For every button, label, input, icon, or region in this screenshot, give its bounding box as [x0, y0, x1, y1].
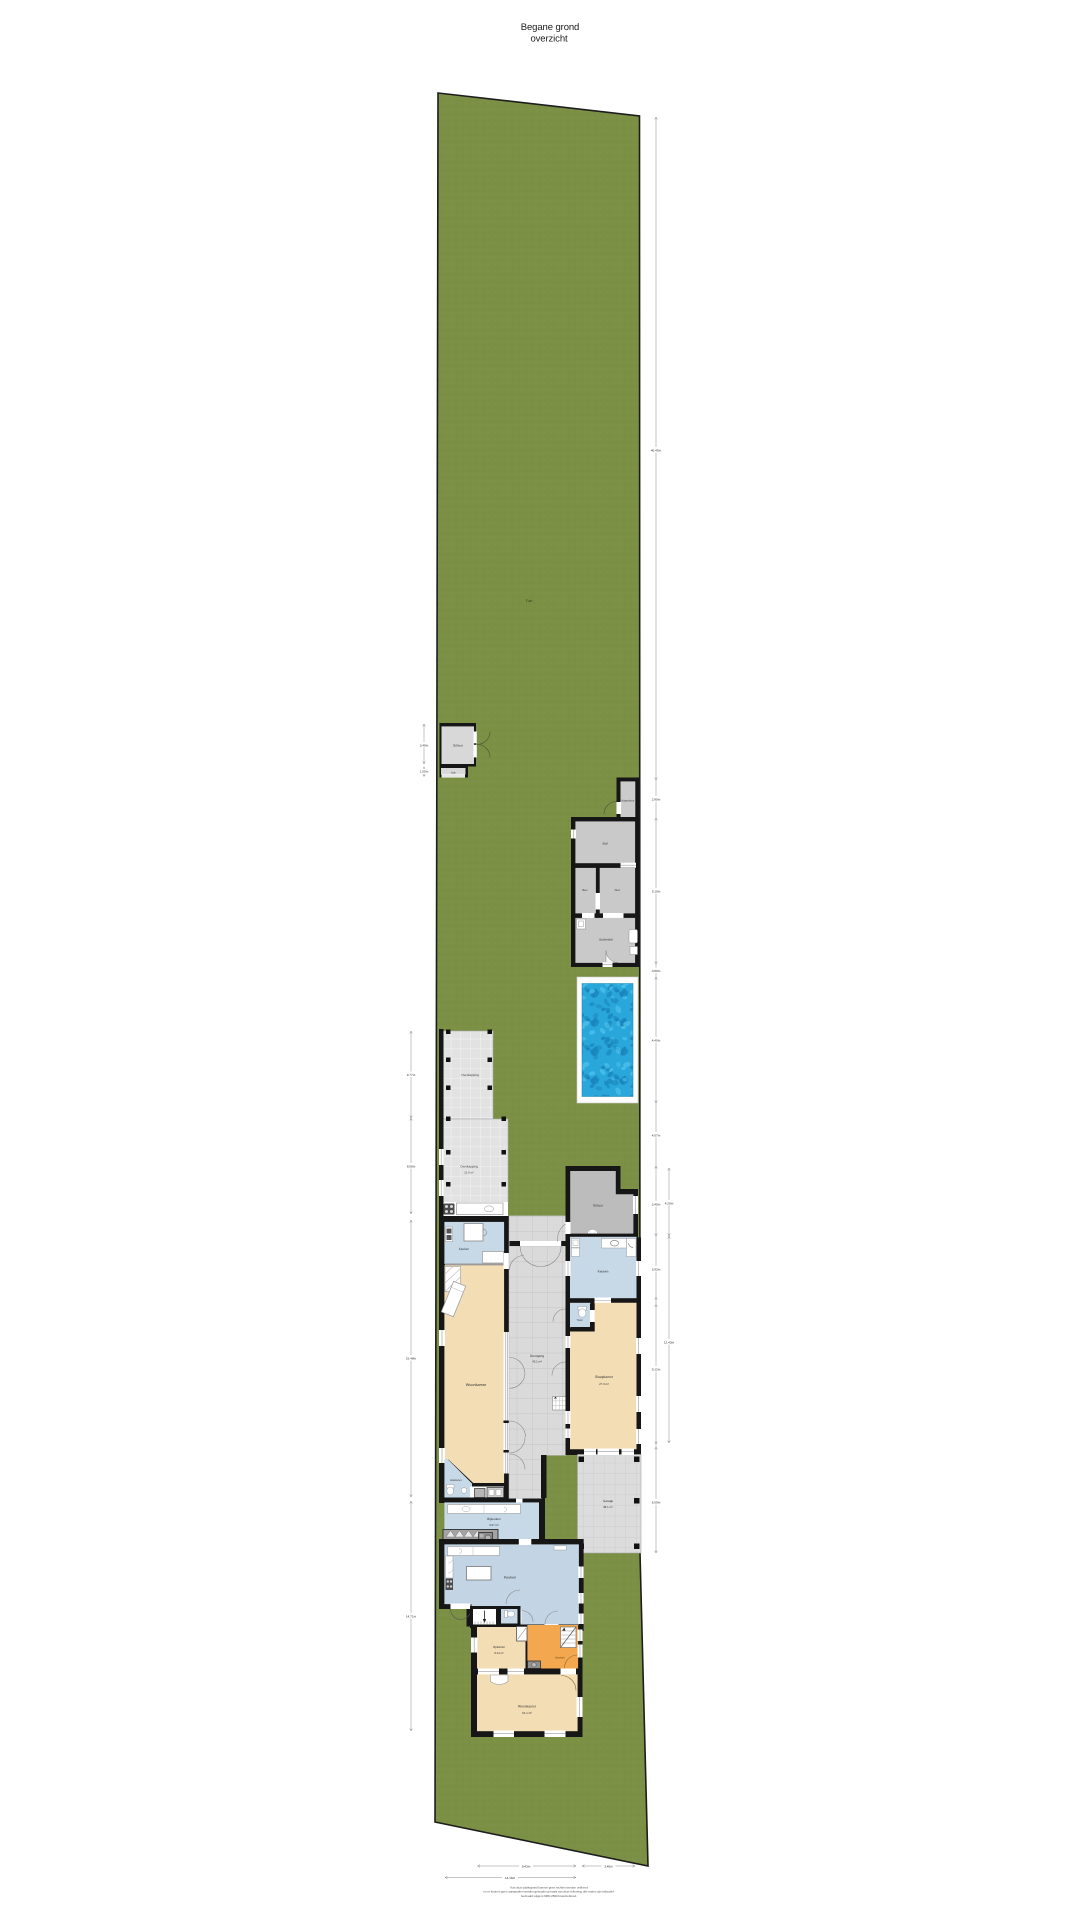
svg-text:Woonkamer: Woonkamer [466, 1383, 487, 1387]
svg-text:14.71m: 14.71m [406, 1614, 417, 1618]
svg-text:3.46m: 3.46m [604, 1864, 613, 1868]
svg-text:2.80m: 2.80m [652, 797, 661, 801]
svg-text:3.49m: 3.49m [420, 743, 429, 747]
svg-text:Stal: Stal [615, 888, 620, 892]
svg-text:8.24 m²: 8.24 m² [494, 1651, 504, 1655]
svg-text:1.05m: 1.05m [420, 770, 429, 774]
svg-text:9.43m: 9.43m [522, 1864, 531, 1868]
svg-text:40.45m: 40.45m [651, 448, 662, 452]
svg-text:12.43m: 12.43m [664, 1340, 675, 1344]
svg-text:Doorgang: Doorgang [530, 1354, 544, 1358]
svg-text:27.3 m²: 27.3 m² [599, 1382, 609, 1386]
svg-text:Stal: Stal [602, 842, 608, 846]
svg-text:Buitenstal: Buitenstal [599, 938, 613, 942]
svg-text:Kapschuur: Kapschuur [622, 800, 635, 803]
svg-text:Keuken: Keuken [555, 1656, 565, 1660]
svg-text:3.93m: 3.93m [652, 1267, 661, 1271]
svg-text:Slaapkamer: Slaapkamer [595, 1375, 614, 1379]
svg-text:overzicht: overzicht [530, 34, 568, 45]
svg-text:Opkamer: Opkamer [493, 1645, 505, 1649]
svg-text:3.40m: 3.40m [652, 1202, 661, 1206]
svg-text:Bak: Bak [451, 772, 456, 775]
svg-text:Schuur: Schuur [593, 1204, 604, 1208]
svg-text:Schuur: Schuur [453, 744, 464, 748]
svg-text:Woonkamer: Woonkamer [518, 1705, 537, 1709]
svg-text:4.40m: 4.40m [652, 1038, 661, 1042]
svg-text:Overkapping: Overkapping [460, 1165, 478, 1169]
svg-text:Keuken: Keuken [598, 1270, 609, 1274]
svg-text:Gemaakt volgens NEN 2580 branc: Gemaakt volgens NEN 2580 branchebreed. [521, 1894, 577, 1898]
svg-text:Garage: Garage [603, 1499, 614, 1503]
svg-text:Begane grond: Begane grond [521, 22, 580, 33]
svg-text:Keuken: Keuken [504, 1576, 516, 1580]
svg-text:0.80m: 0.80m [652, 969, 661, 973]
svg-text:9.77m: 9.77m [407, 1073, 416, 1077]
svg-text:Overkapping: Overkapping [461, 1073, 479, 1077]
svg-text:Box: Box [583, 888, 589, 892]
svg-text:38.1 m²: 38.1 m² [603, 1505, 613, 1509]
svg-text:4.07m: 4.07m [652, 1133, 661, 1137]
svg-text:Bijkeuken: Bijkeuken [487, 1517, 501, 1521]
svg-text:14.16m: 14.16m [505, 1876, 516, 1880]
svg-text:8.06m: 8.06m [407, 1164, 416, 1168]
svg-text:9.12m: 9.12m [652, 1367, 661, 1371]
svg-text:9.10m: 9.10m [652, 889, 661, 893]
svg-text:31.1 m²: 31.1 m² [522, 1711, 532, 1715]
svg-text:Badkamer: Badkamer [450, 1479, 462, 1482]
svg-text:15.48m: 15.48m [406, 1356, 417, 1360]
svg-text:43.1 m²: 43.1 m² [532, 1360, 542, 1364]
svg-text:21.6 m²: 21.6 m² [464, 1171, 474, 1175]
svg-text:Toilet: Toilet [577, 1319, 583, 1322]
svg-text:Keuken: Keuken [459, 1247, 470, 1251]
svg-text:9.07 m²: 9.07 m² [489, 1523, 499, 1527]
svg-text:Tuin: Tuin [526, 599, 533, 603]
svg-text:6.09m: 6.09m [652, 1500, 661, 1504]
svg-text:4.20m: 4.20m [665, 1201, 674, 1205]
